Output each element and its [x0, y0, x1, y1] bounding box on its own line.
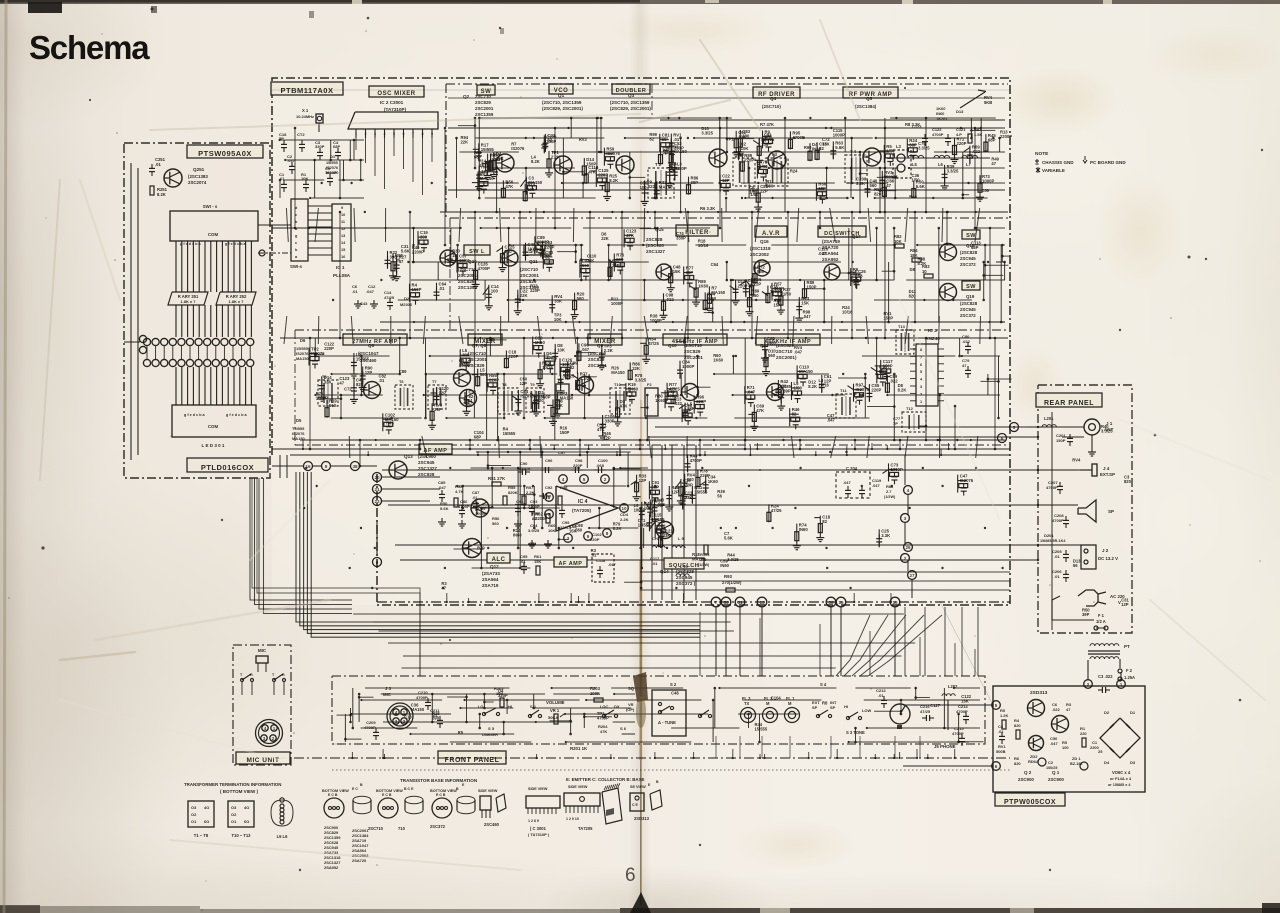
svg-text:L5 L6: L5 L6 — [277, 834, 289, 839]
svg-text:.047: .047 — [872, 483, 880, 488]
svg-text:22P: 22P — [754, 281, 762, 286]
svg-text:2SA952: 2SA952 — [324, 865, 339, 870]
svg-text:82: 82 — [570, 365, 575, 370]
svg-text:2200P: 2200P — [535, 516, 547, 521]
svg-text:5: 5 — [995, 703, 998, 708]
svg-text:15I555: 15I555 — [638, 523, 651, 528]
svg-text:( BOTTOM VIEW ): ( BOTTOM VIEW ) — [220, 789, 259, 794]
svg-text:47: 47 — [991, 161, 996, 166]
svg-text:C10: C10 — [404, 715, 412, 720]
svg-text:8.2K: 8.2K — [531, 159, 540, 164]
svg-text:T6: T6 — [399, 379, 404, 384]
svg-text:(1/2W): (1/2W) — [884, 495, 896, 499]
svg-text:R90: R90 — [804, 145, 812, 150]
svg-text:RF DRIVER: RF DRIVER — [758, 92, 795, 98]
svg-text:PTBM117A0X: PTBM117A0X — [281, 86, 334, 95]
svg-text:8.2K: 8.2K — [613, 526, 622, 531]
svg-text:.01: .01 — [1054, 554, 1060, 559]
svg-text:MA150: MA150 — [611, 370, 625, 375]
svg-text:33K: 33K — [687, 406, 696, 411]
svg-text:MIC: MIC — [258, 648, 267, 653]
svg-text:1K60: 1K60 — [713, 358, 724, 363]
svg-text:SE VIEW: SE VIEW — [630, 785, 646, 789]
svg-text:O1: O1 — [231, 819, 237, 824]
svg-text:5.6K: 5.6K — [724, 536, 733, 541]
svg-text:3: 3 — [263, 736, 266, 741]
svg-text:220P: 220P — [530, 288, 540, 293]
svg-text:2: 2 — [904, 556, 907, 561]
svg-text:22K: 22K — [520, 293, 529, 298]
svg-text:VO6C x 4: VO6C x 4 — [1112, 770, 1131, 775]
svg-text:Q4: Q4 — [770, 96, 777, 101]
svg-text:5.6K: 5.6K — [401, 249, 410, 254]
svg-text:ALC: ALC — [492, 557, 506, 563]
svg-text:Q5: Q5 — [866, 96, 873, 101]
svg-text:.047: .047 — [493, 157, 502, 162]
svg-text:6: 6 — [920, 363, 922, 367]
svg-text:SWI-s: SWI-s — [290, 264, 303, 269]
svg-text:SP: SP — [1108, 509, 1114, 514]
svg-text:SW L: SW L — [469, 249, 485, 255]
svg-text:2SA952: 2SA952 — [822, 257, 839, 262]
svg-text:47/25: 47/25 — [479, 163, 490, 168]
svg-text:220P: 220P — [871, 388, 881, 393]
svg-text:PTLD016COX: PTLD016COX — [201, 463, 254, 472]
svg-text:21: 21 — [374, 487, 380, 492]
svg-text:220P: 220P — [738, 283, 748, 288]
svg-text:.01: .01 — [998, 729, 1004, 734]
svg-text:3.3/25: 3.3/25 — [1101, 429, 1113, 434]
svg-text:4: 4 — [264, 726, 267, 731]
svg-text:SP: SP — [812, 705, 818, 710]
svg-text:6O: 6O — [204, 819, 209, 824]
svg-text:O2: O2 — [191, 812, 197, 817]
svg-text:10: 10 — [922, 269, 927, 274]
svg-text:2.2K: 2.2K — [620, 517, 629, 522]
svg-text:L 9: L 9 — [678, 536, 685, 541]
svg-text:390: 390 — [432, 716, 440, 721]
svg-text:IN60: IN60 — [513, 533, 522, 538]
svg-text:.01: .01 — [652, 561, 658, 566]
svg-text:3: 3 — [374, 132, 376, 136]
svg-text:1K: 1K — [395, 257, 401, 262]
svg-text:AF AMP: AF AMP — [424, 448, 448, 454]
svg-text:CH-1: CH-1 — [652, 536, 662, 541]
svg-text:COM: COM — [208, 232, 219, 237]
svg-text:A.V.R: A.V.R — [762, 231, 780, 237]
svg-text:(2SC829, 2SC2001): (2SC829, 2SC2001) — [610, 106, 651, 111]
svg-text:HI: HI — [844, 704, 848, 709]
svg-text:NOTE: NOTE — [1035, 151, 1049, 157]
svg-text:1/50: 1/50 — [750, 192, 759, 197]
svg-text:2SC2002: 2SC2002 — [750, 252, 769, 257]
svg-text:PTSW095A0X: PTSW095A0X — [198, 149, 252, 158]
svg-text:13: 13 — [341, 234, 345, 238]
svg-text:B: B — [360, 783, 363, 787]
svg-text:1000P: 1000P — [316, 396, 328, 401]
svg-text:.022: .022 — [962, 339, 971, 344]
svg-text:47K: 47K — [620, 403, 629, 408]
svg-text:F 1: F 1 — [1098, 613, 1105, 618]
svg-text:33K: 33K — [663, 533, 672, 538]
svg-text:2SC1327: 2SC1327 — [418, 466, 437, 471]
svg-text:4700P: 4700P — [478, 266, 490, 271]
svg-text:2SA720: 2SA720 — [352, 858, 367, 863]
svg-text:33K: 33K — [324, 380, 333, 385]
svg-text:12P: 12P — [671, 490, 679, 495]
svg-text:D13: D13 — [956, 109, 964, 114]
svg-text:820: 820 — [874, 192, 882, 197]
svg-text:100: 100 — [640, 185, 648, 190]
svg-text:TX: TX — [744, 701, 750, 706]
svg-text:(2SA733: (2SA733 — [482, 571, 500, 576]
svg-text:47/25: 47/25 — [771, 508, 782, 513]
svg-text:1: 1 — [273, 726, 276, 731]
svg-text:22: 22 — [374, 499, 380, 504]
svg-text:12P: 12P — [639, 478, 647, 483]
svg-text:15K: 15K — [673, 269, 682, 274]
svg-text:C81: C81 — [529, 542, 537, 547]
svg-text:(2SC710: (2SC710 — [468, 351, 486, 356]
svg-text:22P: 22P — [760, 189, 768, 194]
svg-text:560: 560 — [757, 269, 765, 274]
svg-text:6: 6 — [402, 132, 404, 136]
svg-text:IC 2 C3001: IC 2 C3001 — [380, 100, 404, 105]
svg-text:M2306: M2306 — [400, 302, 413, 307]
svg-text:MA150: MA150 — [411, 707, 425, 712]
svg-text:SW: SW — [966, 284, 976, 290]
svg-text:T7: T7 — [432, 379, 437, 384]
svg-text:68P: 68P — [971, 245, 979, 250]
svg-text:3: 3 — [904, 516, 907, 521]
svg-text:50KA: 50KA — [548, 715, 558, 720]
svg-text:2SC2001: 2SC2001 — [475, 106, 494, 111]
svg-text:15I555: 15I555 — [755, 726, 768, 731]
svg-text:PT: PT — [1124, 644, 1130, 649]
svg-text:B: B — [656, 780, 659, 784]
svg-text:Δ - TUNE: Δ - TUNE — [658, 720, 676, 725]
svg-text:1: 1 — [355, 132, 357, 136]
svg-text:220P: 220P — [324, 346, 334, 351]
svg-text:CHASSIS GND: CHASSIS GND — [1042, 160, 1074, 165]
svg-text:SWI - s: SWI - s — [203, 204, 218, 209]
svg-text:C36: C36 — [981, 188, 989, 193]
svg-text:47/25: 47/25 — [384, 295, 395, 300]
svg-text:(2SA719: (2SA719 — [822, 239, 840, 244]
svg-text:2SC2001: 2SC2001 — [520, 273, 539, 278]
svg-text:47K: 47K — [588, 169, 597, 174]
svg-text:2SC710: 2SC710 — [776, 349, 793, 354]
svg-text:T10 ~ T13: T10 ~ T13 — [232, 833, 252, 838]
svg-text:F2: F2 — [647, 382, 652, 387]
svg-text:L5: L5 — [912, 162, 918, 167]
svg-text:TRANSFORMER TERMINATION INF: TRANSFORMER TERMINATION INFORMATION — [184, 782, 281, 787]
svg-text:IC 4: IC 4 — [578, 499, 588, 505]
svg-text:3: 3 — [567, 536, 570, 541]
svg-text:S 4: S 4 — [820, 682, 827, 687]
svg-text:5: 5 — [393, 132, 395, 136]
svg-text:4: 4 — [562, 477, 565, 482]
svg-text:15I885 5R-1K4: 15I885 5R-1K4 — [1040, 539, 1066, 543]
svg-text:56: 56 — [717, 494, 722, 499]
svg-text:2SC2001: 2SC2001 — [468, 357, 487, 362]
svg-text:IS2076: IS2076 — [326, 166, 338, 170]
svg-text:38: 38 — [828, 600, 834, 605]
svg-text:E C B: E C B — [328, 793, 338, 797]
svg-text:13: 13 — [759, 600, 765, 605]
svg-text:.022: .022 — [666, 297, 675, 302]
svg-text:D2: D2 — [1104, 710, 1110, 715]
svg-text:(1/2W): (1/2W) — [698, 563, 710, 567]
svg-text:VARIABLE: VARIABLE — [1042, 168, 1065, 173]
svg-text:100: 100 — [491, 288, 499, 293]
svg-text:10/16: 10/16 — [819, 383, 830, 388]
svg-text:LOW: LOW — [862, 708, 871, 713]
svg-text:SW: SW — [966, 233, 976, 239]
svg-text:3.3/25: 3.3/25 — [727, 557, 739, 562]
svg-text:.022: .022 — [674, 401, 683, 406]
svg-text:10K: 10K — [894, 239, 902, 244]
svg-text:COM: COM — [208, 424, 219, 429]
svg-text:2200P: 2200P — [1000, 134, 1012, 139]
svg-text:220P: 220P — [957, 141, 967, 146]
svg-text:22K: 22K — [601, 236, 609, 241]
svg-text:15: 15 — [838, 600, 844, 605]
svg-text:560: 560 — [752, 293, 760, 298]
svg-text:68P: 68P — [474, 434, 482, 439]
svg-text:8: 8 — [606, 531, 609, 536]
svg-text:10K: 10K — [465, 403, 473, 408]
svg-text:3.3/25: 3.3/25 — [947, 168, 959, 173]
svg-text:2: 2 — [920, 392, 922, 396]
svg-text:(2SC710: (2SC710 — [684, 343, 702, 348]
svg-text:DC 13.2 V: DC 13.2 V — [1098, 556, 1118, 561]
svg-text:.01: .01 — [352, 289, 358, 294]
svg-text:Q14: Q14 — [660, 569, 669, 574]
svg-text:E C: E C — [352, 787, 358, 791]
svg-text:2SC900: 2SC900 — [1018, 777, 1034, 782]
svg-text:47: 47 — [339, 381, 344, 386]
svg-text:T8: T8 — [502, 382, 507, 387]
svg-text:D201: D201 — [1044, 533, 1054, 538]
svg-text:20: 20 — [374, 475, 380, 480]
svg-text:820: 820 — [537, 398, 545, 403]
svg-text:1.25A: 1.25A — [1124, 675, 1135, 680]
svg-text:33K: 33K — [822, 141, 830, 146]
svg-text:820K: 820K — [508, 490, 518, 495]
svg-text:Q3: Q3 — [628, 93, 635, 98]
svg-text:F 2: F 2 — [1126, 668, 1133, 673]
svg-text:4O: 4O — [204, 805, 209, 810]
svg-text:4700P: 4700P — [932, 132, 944, 137]
svg-text:2SC372 ): 2SC372 ) — [676, 581, 696, 586]
svg-text:22K: 22K — [555, 403, 564, 408]
svg-text:J 2: J 2 — [1102, 548, 1109, 553]
svg-text:.068: .068 — [596, 463, 605, 468]
svg-text:Schema: Schema — [29, 29, 150, 66]
svg-text:1/2 A: 1/2 A — [1096, 619, 1106, 624]
svg-text:33K: 33K — [685, 495, 694, 500]
svg-text:39P: 39P — [783, 389, 791, 394]
svg-text:(2SC710: (2SC710 — [520, 267, 538, 272]
svg-text:g f e d c b a: g f e d c b a — [226, 413, 248, 417]
svg-text:(2SC828: (2SC828 — [960, 301, 978, 306]
svg-text:L6: L6 — [938, 162, 944, 167]
svg-text:1.8K x 7: 1.8K x 7 — [181, 299, 197, 304]
svg-text:Q1: Q1 — [558, 93, 565, 98]
svg-text:.047: .047 — [608, 562, 616, 567]
svg-text:O2: O2 — [231, 812, 237, 817]
svg-text:560: 560 — [768, 353, 776, 358]
svg-text:Q251: Q251 — [193, 167, 205, 172]
svg-text:Q10: Q10 — [668, 343, 677, 348]
svg-text:CT2: CT2 — [297, 132, 305, 137]
svg-text:4700P: 4700P — [416, 695, 428, 700]
svg-text:7P: 7P — [893, 421, 898, 426]
svg-text:D3: D3 — [1130, 760, 1136, 765]
svg-text:7: 7 — [412, 132, 414, 136]
svg-text:R24: R24 — [790, 169, 798, 174]
svg-text:.047: .047 — [794, 350, 803, 355]
svg-text:56: 56 — [1073, 563, 1078, 568]
svg-text:4O: 4O — [244, 805, 249, 810]
svg-text:D5: D5 — [296, 418, 302, 423]
svg-text:4700P: 4700P — [597, 715, 609, 720]
svg-text:2SC372: 2SC372 — [960, 262, 976, 267]
svg-text:3: 3 — [920, 385, 922, 389]
svg-text:560: 560 — [492, 521, 500, 526]
svg-text:3: 3 — [395, 719, 398, 724]
svg-text:.047: .047 — [843, 480, 851, 485]
svg-text:31: 31 — [737, 600, 743, 605]
svg-text:10K: 10K — [557, 347, 566, 352]
svg-text:9: 9 — [341, 206, 343, 210]
svg-text:1K60: 1K60 — [698, 284, 709, 289]
svg-text:IN60: IN60 — [767, 341, 777, 346]
svg-text:D4: D4 — [1104, 760, 1110, 765]
svg-text:(TA7205): (TA7205) — [572, 508, 592, 513]
svg-text:10K: 10K — [554, 317, 562, 322]
svg-text:O3: O3 — [191, 805, 197, 810]
svg-text:or 15I885 x 4: or 15I885 x 4 — [1108, 783, 1131, 787]
svg-text:3.3/25: 3.3/25 — [635, 378, 647, 383]
svg-text:2: 2 — [1087, 682, 1090, 687]
svg-text:330P: 330P — [676, 236, 686, 241]
svg-text:Q13: Q13 — [404, 454, 413, 459]
svg-text:47K: 47K — [756, 408, 765, 413]
svg-text:AF AMP: AF AMP — [559, 561, 583, 567]
svg-text:O1: O1 — [191, 819, 197, 824]
svg-text:E C B: E C B — [436, 793, 446, 797]
svg-text:10K: 10K — [548, 528, 556, 533]
svg-text:( C 3001: ( C 3001 — [530, 826, 547, 831]
svg-text:R201 1K: R201 1K — [570, 746, 588, 751]
svg-text:VOLUME: VOLUME — [546, 700, 565, 705]
svg-text:8.2K: 8.2K — [808, 384, 817, 389]
svg-text:15I555: 15I555 — [356, 357, 370, 362]
svg-text:5.6K: 5.6K — [440, 506, 449, 511]
svg-text:38: 38 — [352, 464, 358, 469]
svg-text:(2SC900: (2SC900 — [418, 454, 436, 459]
svg-text:18K: 18K — [910, 253, 918, 258]
svg-text:C E: C E — [632, 803, 639, 807]
svg-text:.047: .047 — [1050, 741, 1058, 746]
svg-text:150P: 150P — [586, 162, 596, 167]
svg-text:3.3/25: 3.3/25 — [701, 130, 713, 135]
svg-text:26: 26 — [905, 545, 911, 550]
svg-text:33K: 33K — [554, 299, 563, 304]
svg-text:Q16: Q16 — [760, 239, 769, 244]
svg-text:330P: 330P — [683, 482, 693, 487]
svg-text:FILTER: FILTER — [685, 230, 709, 236]
svg-text:820: 820 — [1014, 723, 1021, 728]
svg-text:16: 16 — [341, 255, 345, 259]
svg-text:Q19: Q19 — [966, 294, 975, 299]
svg-text:IS2076: IS2076 — [511, 146, 525, 151]
svg-text:RV4: RV4 — [1072, 457, 1081, 462]
svg-text:(2SC710, 2SC1359: (2SC710, 2SC1359 — [610, 100, 650, 105]
svg-text:4700P: 4700P — [690, 458, 702, 463]
svg-text:2.7: 2.7 — [886, 489, 892, 494]
svg-text:PC BOARD GND: PC BOARD GND — [1090, 160, 1126, 165]
svg-text:150P: 150P — [560, 430, 570, 435]
svg-text:56: 56 — [858, 274, 863, 279]
svg-text:4: 4 — [907, 488, 910, 493]
svg-text:39P: 39P — [434, 407, 442, 412]
svg-text:15K: 15K — [774, 302, 782, 307]
svg-text:2SC900: 2SC900 — [1048, 777, 1064, 782]
svg-text:.022: .022 — [1052, 707, 1060, 712]
svg-text:.047: .047 — [581, 347, 590, 352]
svg-text:8.2K: 8.2K — [157, 192, 166, 197]
svg-text:.047: .047 — [438, 485, 447, 490]
svg-text:R45: R45 — [386, 421, 394, 426]
svg-text:(2SC828: (2SC828 — [960, 250, 978, 255]
svg-text:TA7205: TA7205 — [578, 826, 593, 831]
svg-text:IN60: IN60 — [799, 527, 809, 532]
svg-text:MA150: MA150 — [296, 356, 310, 361]
svg-text:1000P: 1000P — [611, 301, 623, 306]
svg-text:47K: 47K — [597, 427, 605, 432]
svg-text:2: 2 — [272, 736, 275, 741]
svg-text:12P: 12P — [1121, 602, 1129, 607]
svg-text:RD6A: RD6A — [1028, 759, 1039, 764]
svg-text:C48: C48 — [671, 690, 679, 695]
svg-text:L7: L7 — [966, 162, 972, 167]
svg-text:T13: T13 — [898, 324, 906, 329]
svg-text:2SC710: 2SC710 — [368, 826, 384, 831]
svg-text:IC 3: IC 3 — [928, 328, 937, 334]
svg-text:8: 8 — [421, 132, 423, 136]
svg-text:OSC MIXER: OSC MIXER — [377, 91, 415, 97]
svg-text:3.3/25: 3.3/25 — [918, 146, 930, 151]
svg-text:O3: O3 — [231, 805, 237, 810]
svg-text:M: M — [766, 701, 770, 706]
svg-text:2SC828: 2SC828 — [646, 237, 663, 242]
svg-text:2SA564: 2SA564 — [482, 577, 499, 582]
svg-text:6: 6 — [995, 764, 998, 769]
svg-text:C92: C92 — [545, 485, 553, 490]
svg-text:B: B — [456, 787, 459, 791]
svg-text:5: 5 — [1013, 425, 1016, 430]
svg-text:5: 5 — [583, 477, 586, 482]
svg-text:270(1/2W): 270(1/2W) — [722, 580, 742, 585]
svg-text:100: 100 — [1062, 745, 1069, 750]
svg-text:15K: 15K — [961, 698, 969, 703]
svg-text:68P: 68P — [988, 138, 996, 143]
svg-text:1: 1 — [1120, 682, 1123, 687]
svg-text:56: 56 — [723, 600, 729, 605]
